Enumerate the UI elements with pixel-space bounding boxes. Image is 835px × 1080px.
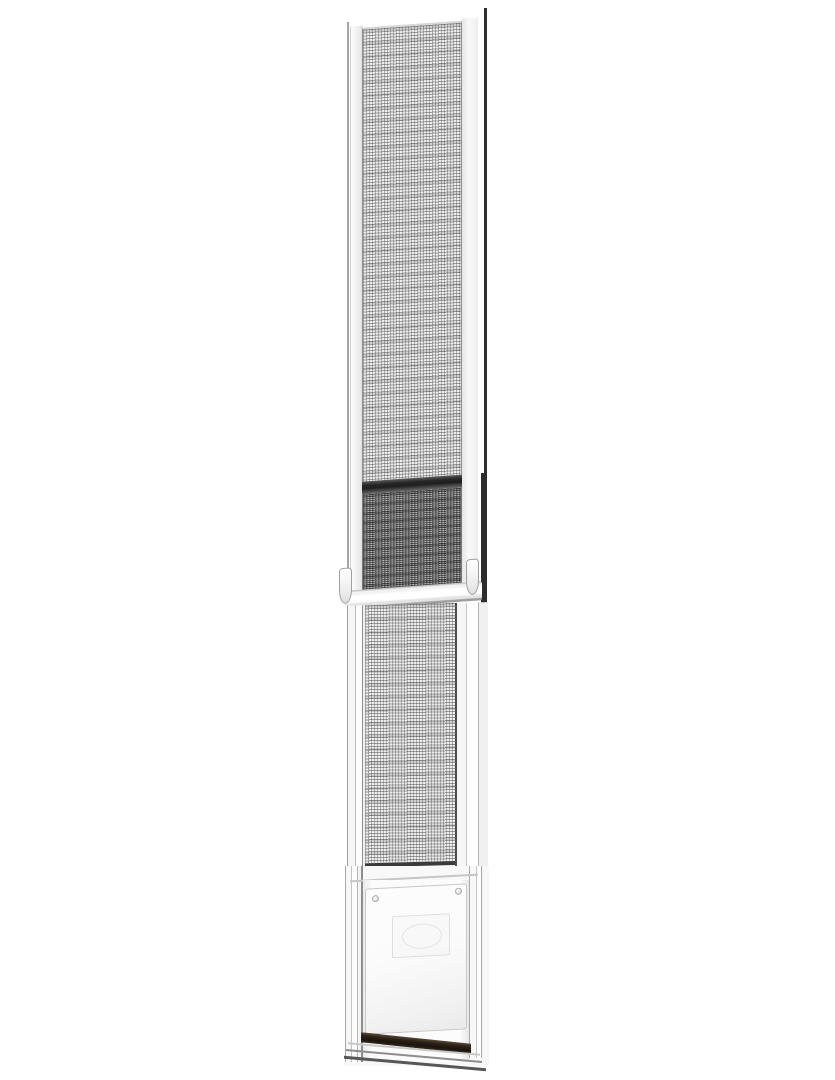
flap-screw-left: [372, 895, 379, 902]
right-track-rail-upper: [484, 8, 487, 473]
left-latch-clip: [339, 567, 352, 604]
lower-panel-right-frame: [455, 602, 488, 867]
embossed-logo-oval: [402, 923, 442, 950]
upper-screen-mesh: [362, 21, 462, 482]
upper-panel-right-frame: [462, 18, 478, 599]
flap-frame-right-moulding: [469, 866, 483, 1058]
right-latch-clip: [466, 558, 479, 595]
upper-screen-extension-panel: [350, 16, 478, 610]
lower-panel-left-frame: [345, 605, 365, 870]
product-photo: Product photo on a plain white backgroun…: [0, 0, 835, 1080]
screen-overlap-mesh: [362, 488, 462, 592]
embossed-logo-badge: [392, 913, 450, 958]
pet-flap: [365, 883, 467, 1034]
left-track-rail: [347, 22, 349, 604]
pet-flap-frame: [344, 866, 489, 1066]
magnetic-strip: [361, 1032, 471, 1054]
lower-screen-panel: [345, 602, 488, 870]
flap-recess: [363, 880, 469, 1062]
lower-screen-mesh: [365, 603, 455, 867]
flap-screw-right: [455, 888, 462, 895]
image-caption: Product photo on a plain white backgroun…: [0, 0, 1, 1]
